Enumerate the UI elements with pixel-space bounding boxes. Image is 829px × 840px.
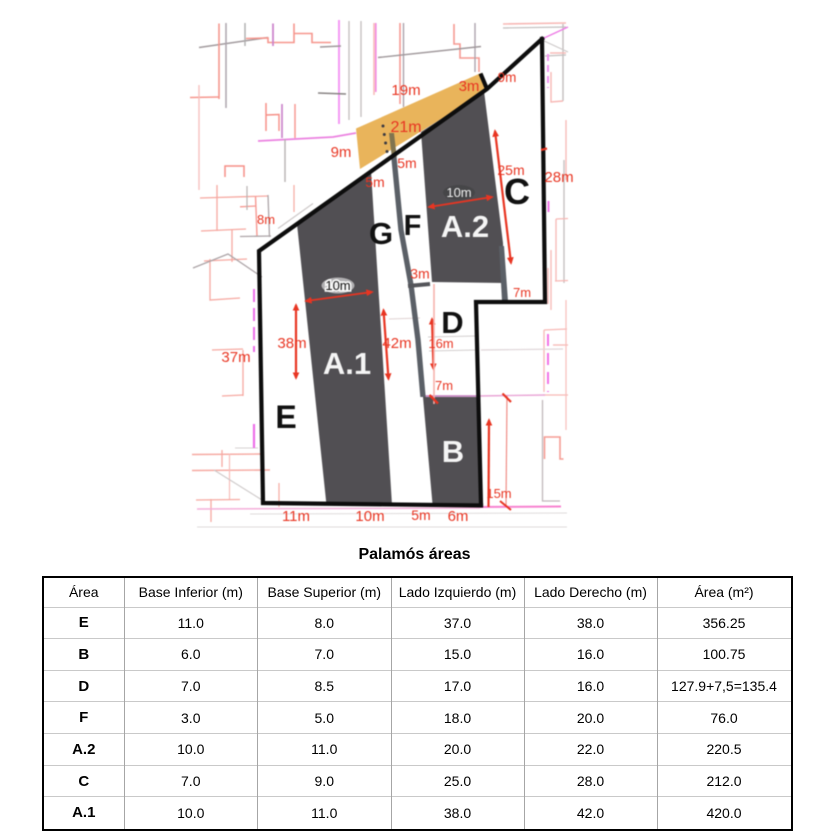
svg-text:10m: 10m: [446, 185, 471, 200]
svg-text:9m: 9m: [331, 144, 352, 161]
svg-text:42m: 42m: [382, 335, 411, 352]
svg-text:7m: 7m: [435, 378, 453, 393]
svg-text:3m: 3m: [459, 78, 480, 95]
svg-text:7m: 7m: [513, 285, 531, 300]
svg-text:E: E: [275, 399, 296, 435]
svg-text:10m: 10m: [355, 508, 384, 525]
svg-text:C: C: [504, 171, 530, 212]
svg-text:5m: 5m: [365, 174, 384, 190]
svg-text:G: G: [369, 216, 393, 251]
svg-text:37m: 37m: [221, 349, 250, 366]
svg-text:A.2: A.2: [441, 209, 489, 244]
svg-text:38m: 38m: [277, 335, 306, 352]
svg-text:28m: 28m: [544, 169, 573, 186]
svg-text:D: D: [441, 305, 463, 340]
svg-text:8m: 8m: [257, 212, 275, 227]
svg-text:6m: 6m: [448, 508, 469, 525]
svg-text:21m: 21m: [390, 119, 421, 136]
svg-text:11m: 11m: [282, 508, 310, 525]
svg-text:5m: 5m: [411, 507, 430, 523]
svg-text:A.1: A.1: [323, 346, 371, 381]
svg-text:10m: 10m: [325, 278, 350, 293]
svg-text:15m: 15m: [486, 486, 511, 501]
svg-text:B: B: [442, 434, 464, 469]
svg-text:9m: 9m: [498, 70, 517, 85]
svg-text:5m: 5m: [397, 155, 416, 171]
svg-text:19m: 19m: [391, 82, 420, 99]
svg-text:3m: 3m: [410, 266, 429, 282]
svg-text:F: F: [404, 210, 422, 242]
